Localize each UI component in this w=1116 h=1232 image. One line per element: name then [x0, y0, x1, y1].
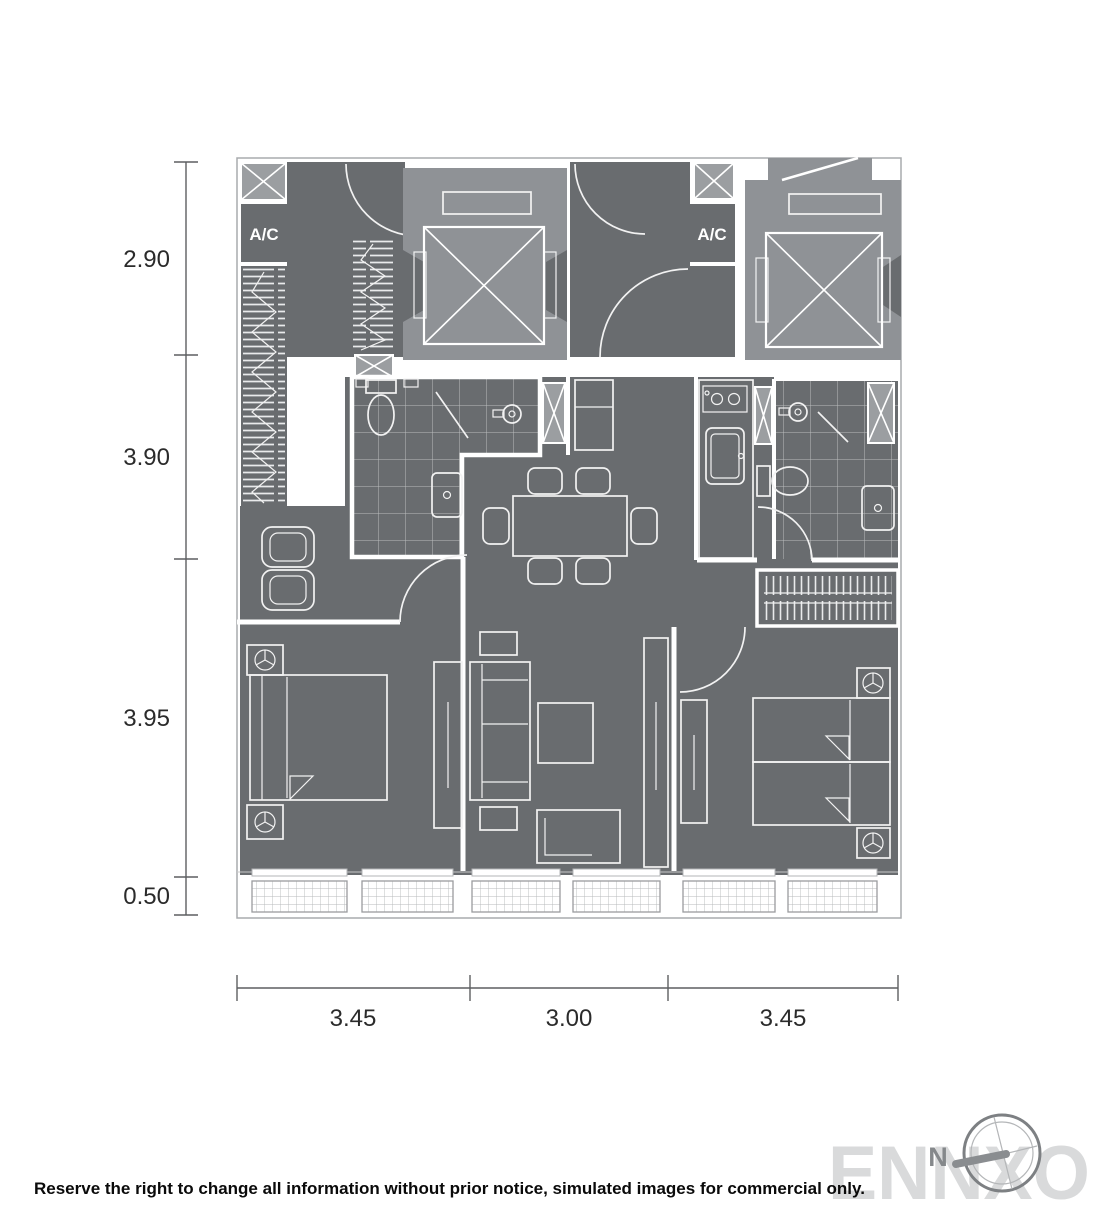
- bathroom-2: [755, 379, 898, 561]
- disclaimer: Reserve the right to change all informat…: [34, 1179, 865, 1198]
- elevator-2: [745, 158, 901, 360]
- wardrobe: [757, 570, 898, 626]
- closet-strip: [690, 266, 735, 357]
- floor-plan-drawing: A/C: [0, 0, 1116, 1232]
- compass-north-label: N: [928, 1142, 948, 1172]
- dim-bottom-2: 3.00: [546, 1005, 593, 1032]
- elevator-1: [403, 168, 567, 360]
- dim-bottom-1: 3.45: [330, 1005, 377, 1032]
- watermark: ENNXO: [828, 1131, 1090, 1216]
- dim-left-3: 3.95: [123, 705, 170, 732]
- tile-floor: [352, 455, 462, 557]
- hanger-rail-icon: [763, 576, 892, 620]
- floor-plan: A/C: [237, 158, 901, 918]
- floor-plan-page: A/C: [0, 0, 1116, 1232]
- dim-bottom-3: 3.45: [760, 1005, 807, 1032]
- ac-label-2: A/C: [697, 225, 726, 244]
- dim-left-4: 0.50: [123, 883, 170, 910]
- dimensions-bottom: 3.45 3.00 3.45: [237, 975, 898, 1032]
- dim-left-1: 2.90: [123, 246, 170, 273]
- footer: ENNXO N Reserve the right to change all …: [34, 1115, 1090, 1216]
- entry-hall-2: [570, 162, 690, 357]
- tile-floor: [352, 377, 540, 455]
- hanger-rail-icon: [353, 240, 393, 352]
- service-column-right: A/C: [690, 163, 735, 357]
- ac-label-1: A/C: [249, 225, 278, 244]
- service-column-left: A/C: [241, 163, 287, 506]
- dimensions-left: 2.90 3.90 3.95 0.50: [123, 162, 198, 915]
- elevator-core: [403, 168, 567, 360]
- dim-left-2: 3.90: [123, 444, 170, 471]
- hanger-rail-icon: [243, 268, 285, 504]
